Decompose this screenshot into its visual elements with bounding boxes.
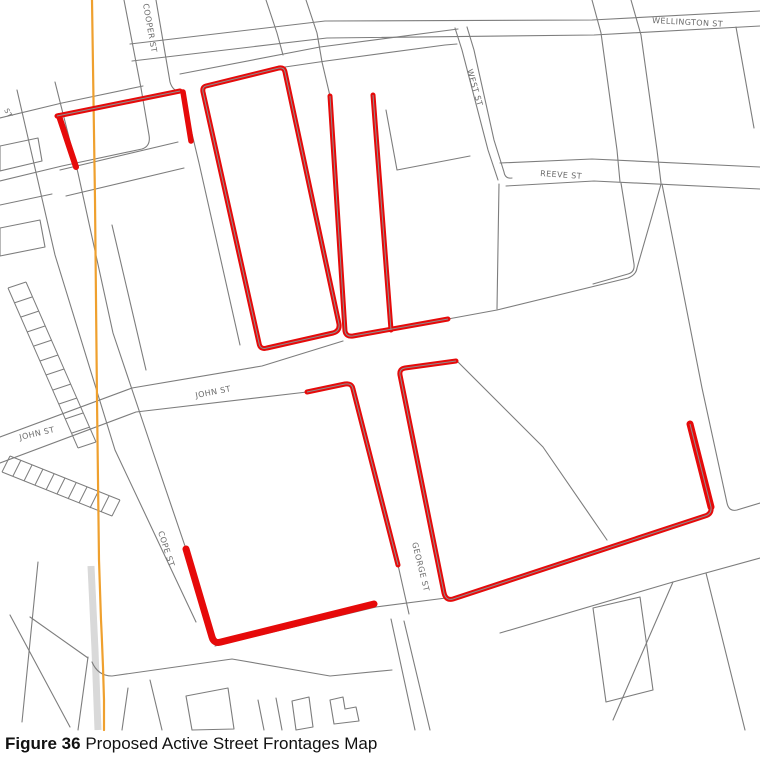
street-label-reeve-st: REEVE ST bbox=[540, 169, 582, 181]
street-line bbox=[156, 0, 181, 91]
street-label-cooper-st: COOPER ST bbox=[141, 3, 158, 54]
street-line bbox=[386, 110, 470, 170]
active-frontages-map: COOPER STWELLINGTON STWEST STREEVE STJOH… bbox=[0, 0, 760, 732]
street-line bbox=[458, 362, 607, 540]
street-line bbox=[736, 27, 754, 128]
street-line bbox=[292, 697, 313, 730]
street-line bbox=[150, 680, 162, 730]
frontage-block-a-right bbox=[183, 92, 191, 141]
street-line bbox=[497, 184, 499, 309]
parcel-lines-layer bbox=[0, 0, 760, 730]
frontage-block-b-loop bbox=[203, 68, 339, 349]
street-line bbox=[92, 659, 392, 676]
street-line bbox=[132, 26, 760, 61]
street-line bbox=[500, 159, 760, 167]
street-line bbox=[30, 617, 88, 658]
frontage-block-a-left bbox=[59, 116, 76, 167]
figure-caption-label: Figure 36 bbox=[5, 734, 81, 753]
street-line bbox=[0, 194, 52, 205]
frontage-george-east-south-chain bbox=[400, 361, 711, 599]
street-label-west-st: WEST ST bbox=[465, 68, 484, 107]
frontage-block-b-loop-centerline bbox=[203, 68, 339, 349]
street-line bbox=[391, 619, 415, 730]
street-line bbox=[613, 582, 673, 720]
street-line bbox=[285, 44, 457, 67]
road-band bbox=[91, 566, 98, 730]
street-line bbox=[276, 698, 282, 730]
street-label-john-st-east: JOHN ST bbox=[194, 384, 232, 400]
figure-caption-title: Proposed Active Street Frontages Map bbox=[81, 734, 378, 753]
street-line bbox=[122, 688, 128, 730]
street-line bbox=[215, 598, 446, 646]
street-line bbox=[0, 220, 45, 256]
frontage-southwest-l bbox=[186, 549, 374, 642]
street-line bbox=[306, 0, 322, 62]
street-label-wellington-st: WELLINGTON ST bbox=[652, 16, 723, 29]
hatch-strip bbox=[8, 282, 96, 448]
hatch-strip bbox=[2, 456, 120, 516]
street-line bbox=[78, 657, 88, 730]
street-line bbox=[0, 341, 343, 437]
street-line bbox=[112, 225, 146, 370]
street-line bbox=[593, 183, 634, 284]
street-line bbox=[506, 181, 760, 189]
street-line bbox=[662, 184, 760, 510]
street-line bbox=[404, 621, 430, 730]
street-line bbox=[322, 62, 330, 96]
street-labels-layer: COOPER STWELLINGTON STWEST STREEVE STJOH… bbox=[2, 3, 723, 593]
map-canvas: COOPER STWELLINGTON STWEST STREEVE STJOH… bbox=[0, 0, 760, 732]
street-line bbox=[180, 29, 458, 74]
street-label-cope-st: COPE ST bbox=[156, 530, 176, 568]
street-line bbox=[258, 700, 264, 730]
street-line bbox=[398, 565, 409, 614]
frontage-block-a-top-centerline bbox=[57, 91, 180, 116]
frontage-george-west-south-centerline bbox=[307, 384, 398, 565]
red-frontages-layer bbox=[57, 68, 711, 643]
frontage-george-east-north-centerline bbox=[373, 95, 391, 330]
road-band-layer bbox=[91, 566, 98, 730]
frontage-george-west-south bbox=[307, 384, 398, 565]
document-page: COOPER STWELLINGTON STWEST STREEVE STJOH… bbox=[0, 0, 760, 768]
street-line bbox=[10, 615, 70, 727]
street-line bbox=[448, 184, 661, 319]
street-line bbox=[706, 573, 745, 730]
figure-caption: Figure 36 Proposed Active Street Frontag… bbox=[5, 734, 755, 754]
street-line bbox=[631, 0, 661, 183]
street-line bbox=[330, 697, 359, 724]
street-line bbox=[0, 138, 42, 171]
street-line bbox=[186, 688, 234, 730]
street-label-john-st-west: JOHN ST bbox=[17, 425, 55, 442]
street-line bbox=[66, 168, 184, 196]
street-label-george-st: GEORGE ST bbox=[410, 541, 431, 592]
street-line bbox=[592, 0, 620, 182]
street-label-st-fragment: ST bbox=[2, 107, 14, 119]
